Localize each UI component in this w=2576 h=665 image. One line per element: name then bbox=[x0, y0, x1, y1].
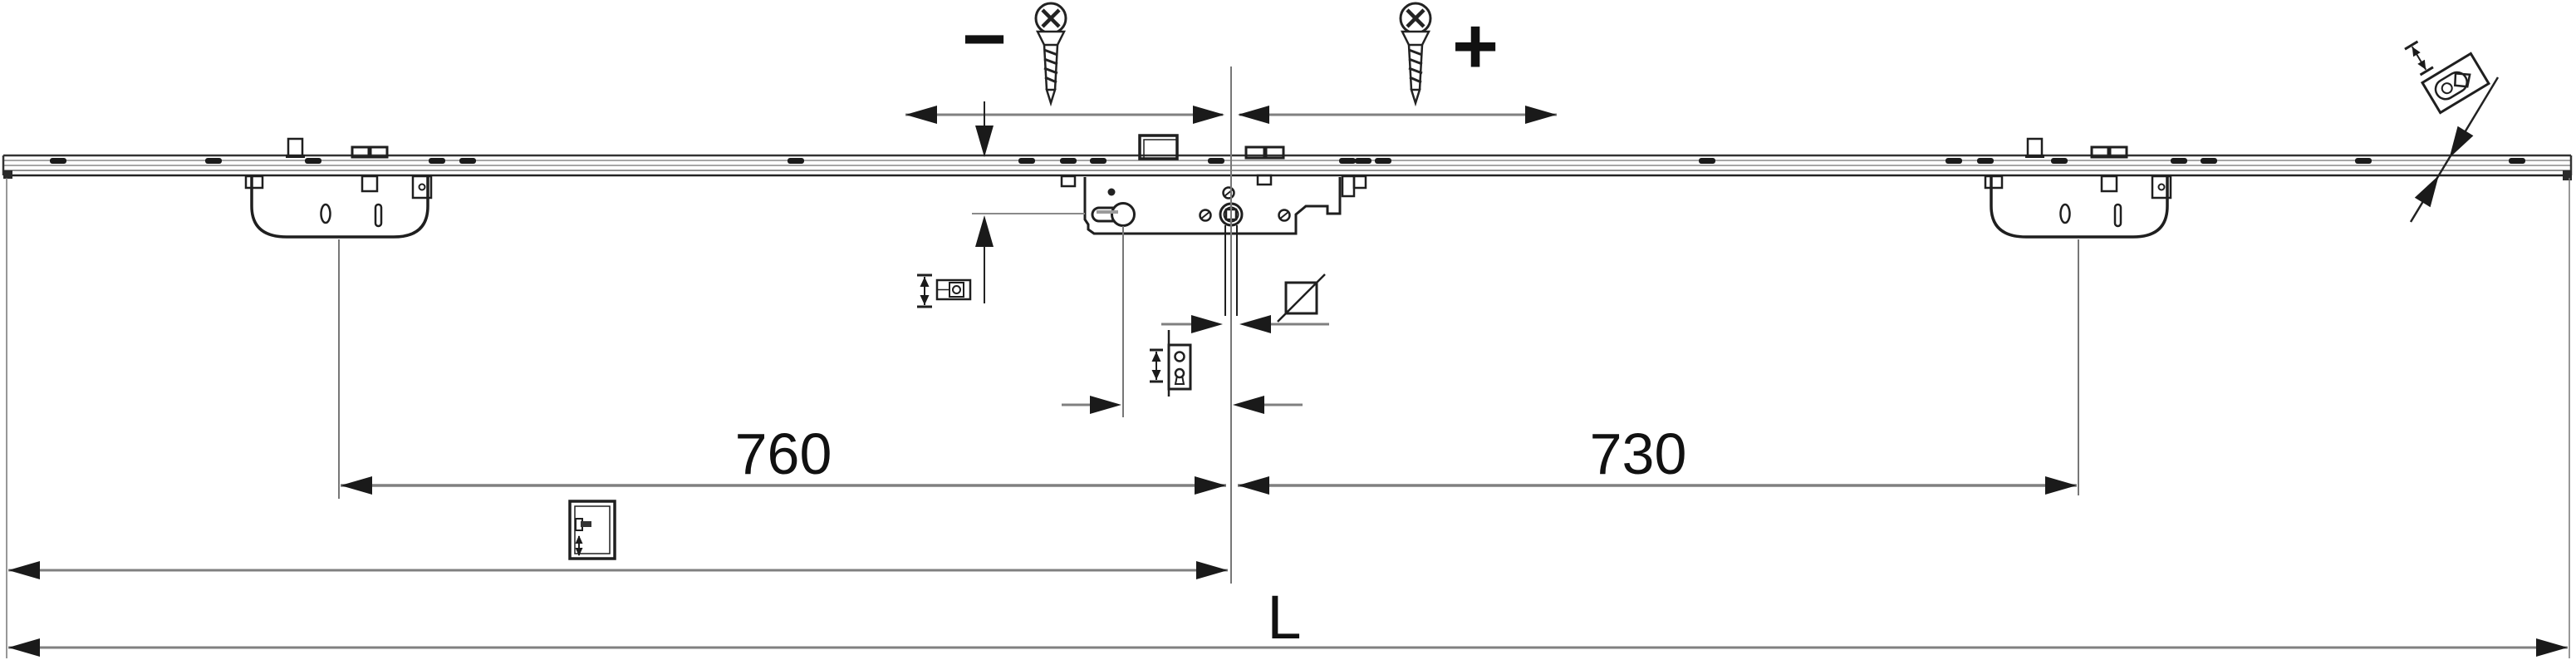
cam-height-adjust-icon bbox=[917, 275, 970, 307]
arrow-left bbox=[905, 106, 937, 124]
faceplate-adjust-icon bbox=[1150, 330, 1190, 397]
total-length-dimension: L bbox=[8, 583, 2568, 657]
case-tab bbox=[1258, 175, 1271, 185]
arrow-to-center bbox=[1193, 106, 1224, 124]
euro-cylinder bbox=[1092, 204, 1135, 226]
case-slot-mark bbox=[321, 204, 331, 223]
arrow-left bbox=[1239, 315, 1271, 333]
technical-drawing: − + 760 730 bbox=[0, 0, 2576, 665]
screw-icon-left bbox=[1036, 3, 1066, 103]
cam-projection-detail-icon bbox=[2422, 53, 2489, 112]
arrow-left bbox=[8, 561, 40, 579]
cylinder-to-spindle-dimension bbox=[1062, 396, 1303, 414]
dimension-label-L: L bbox=[1267, 583, 1301, 652]
arrow-right bbox=[1525, 106, 1557, 124]
arrow-left bbox=[1233, 396, 1264, 414]
arrow-right bbox=[1196, 561, 1228, 579]
case-body bbox=[1991, 177, 2167, 237]
dimension-730: 730 bbox=[1238, 421, 2077, 495]
case-body bbox=[252, 177, 428, 237]
case-slot-mark bbox=[375, 204, 381, 226]
arrow-up bbox=[975, 215, 994, 247]
dimension-760: 760 bbox=[341, 421, 1226, 495]
mushroom-pin-icon bbox=[2028, 139, 2042, 156]
dimension-label-760: 760 bbox=[735, 421, 832, 486]
right-lock-case bbox=[1985, 139, 2171, 237]
backset-dimension bbox=[975, 101, 994, 303]
arrow-to-rail-top bbox=[2450, 126, 2474, 158]
end-to-center-dimension bbox=[8, 561, 1228, 579]
gearbox-end-hook bbox=[1342, 176, 1354, 196]
arrow-right bbox=[2045, 476, 2077, 495]
mushroom-pin-icon bbox=[288, 139, 302, 156]
arrow-left bbox=[341, 476, 372, 495]
rail-end-cap-left bbox=[3, 170, 12, 179]
rail-end-cap-right bbox=[2563, 170, 2572, 180]
case-tab bbox=[362, 176, 377, 191]
handle-height-door-icon bbox=[570, 501, 615, 559]
case-slot-mark bbox=[2061, 204, 2070, 223]
rail bbox=[3, 155, 2572, 180]
case-hook-left bbox=[246, 176, 263, 188]
screw-icon-right bbox=[1401, 3, 1430, 103]
adjust-range-arrows bbox=[2405, 42, 2433, 75]
arrow-left bbox=[8, 638, 40, 657]
arrow-left bbox=[1238, 476, 1269, 495]
left-lock-case bbox=[246, 139, 431, 237]
arrow-down bbox=[975, 126, 994, 157]
arrow-right bbox=[1195, 476, 1226, 495]
arrow-to-center bbox=[1238, 106, 1269, 124]
plus-sign: + bbox=[1452, 2, 1499, 91]
arrow-right bbox=[1090, 396, 1121, 414]
spindle-width-dimension bbox=[1161, 315, 1329, 333]
case-hook-left bbox=[1985, 176, 2002, 188]
minus-sign: − bbox=[962, 0, 1007, 81]
arrow-right bbox=[2536, 638, 2568, 657]
case-tab bbox=[2102, 176, 2117, 191]
case-hook-left bbox=[1062, 176, 1075, 186]
arrow-right bbox=[1191, 315, 1223, 333]
square-spindle-icon bbox=[1278, 274, 1325, 322]
cam-projection-detail bbox=[2405, 42, 2498, 222]
case-slot-mark bbox=[2115, 204, 2121, 226]
arrow-to-rail-bottom bbox=[2415, 175, 2439, 207]
dimension-label-730: 730 bbox=[1590, 421, 1687, 486]
